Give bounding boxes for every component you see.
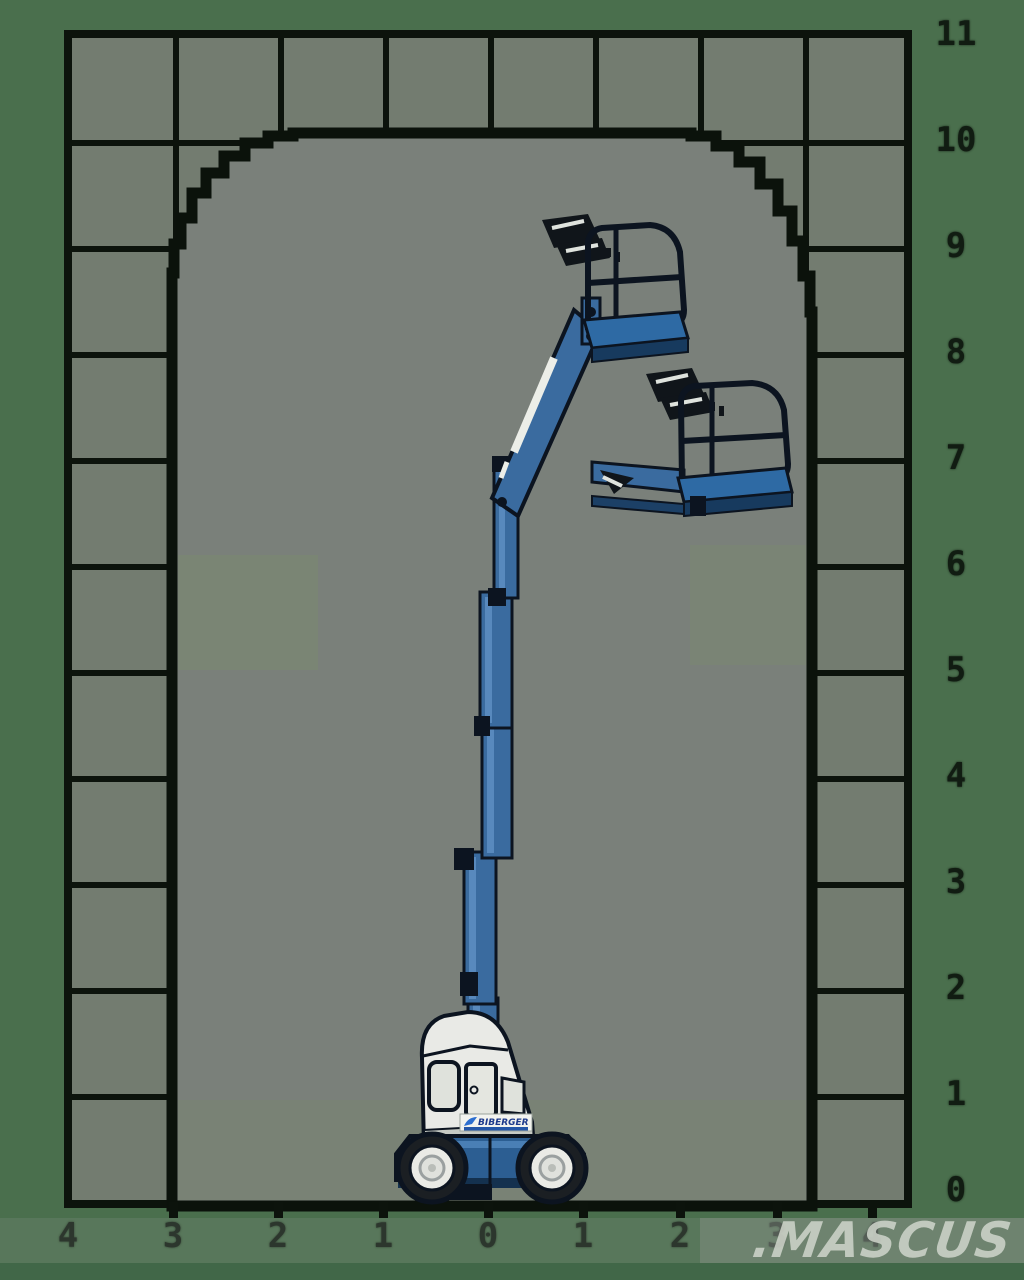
axis-label-height: 4 <box>924 758 988 794</box>
grid-line-vertical <box>383 38 389 1200</box>
grid-line-horizontal <box>72 776 904 782</box>
axis-label-height: 9 <box>924 228 988 264</box>
bottom-strip <box>0 1263 1024 1280</box>
grid-line-vertical <box>803 38 809 1200</box>
envelope-diagram: BIBERGER <box>0 0 1024 1280</box>
axis-tick <box>274 1202 283 1218</box>
grid-line-vertical <box>488 38 494 1200</box>
axis-label-height: 2 <box>924 970 988 1006</box>
axis-label-height: 0 <box>924 1172 988 1208</box>
axis-tick <box>379 1202 388 1218</box>
axis-tick <box>484 1202 493 1218</box>
grid-line-horizontal <box>72 882 904 888</box>
grid-line-horizontal <box>72 352 904 358</box>
grid-line-horizontal <box>72 246 904 252</box>
axis-label-height: 7 <box>924 440 988 476</box>
axis-label-height: 5 <box>924 652 988 688</box>
axis-label-height: 1 <box>924 1076 988 1112</box>
watermark: .MASCUS <box>749 1212 1016 1269</box>
grid-line-horizontal <box>72 1094 904 1100</box>
axis-label-height: 6 <box>924 546 988 582</box>
axis-label-height: 11 <box>924 16 988 52</box>
grid-line-horizontal <box>72 564 904 570</box>
axis-label-height: 10 <box>924 122 988 158</box>
grid-line-vertical <box>698 38 704 1200</box>
grid-line-horizontal <box>72 140 904 146</box>
grid-line-vertical <box>593 38 599 1200</box>
axis-tick <box>676 1202 685 1218</box>
axis-tick <box>773 1202 782 1218</box>
grid-line-horizontal <box>72 670 904 676</box>
axis-label-height: 8 <box>924 334 988 370</box>
plot-area <box>64 30 912 1208</box>
axis-tick <box>868 1202 877 1218</box>
axis-tick <box>169 1202 178 1218</box>
grid-line-vertical <box>278 38 284 1200</box>
grid-line-horizontal <box>72 988 904 994</box>
axis-label-height: 3 <box>924 864 988 900</box>
grid-line-vertical <box>173 38 179 1200</box>
grid-line-horizontal <box>72 458 904 464</box>
axis-tick <box>579 1202 588 1218</box>
